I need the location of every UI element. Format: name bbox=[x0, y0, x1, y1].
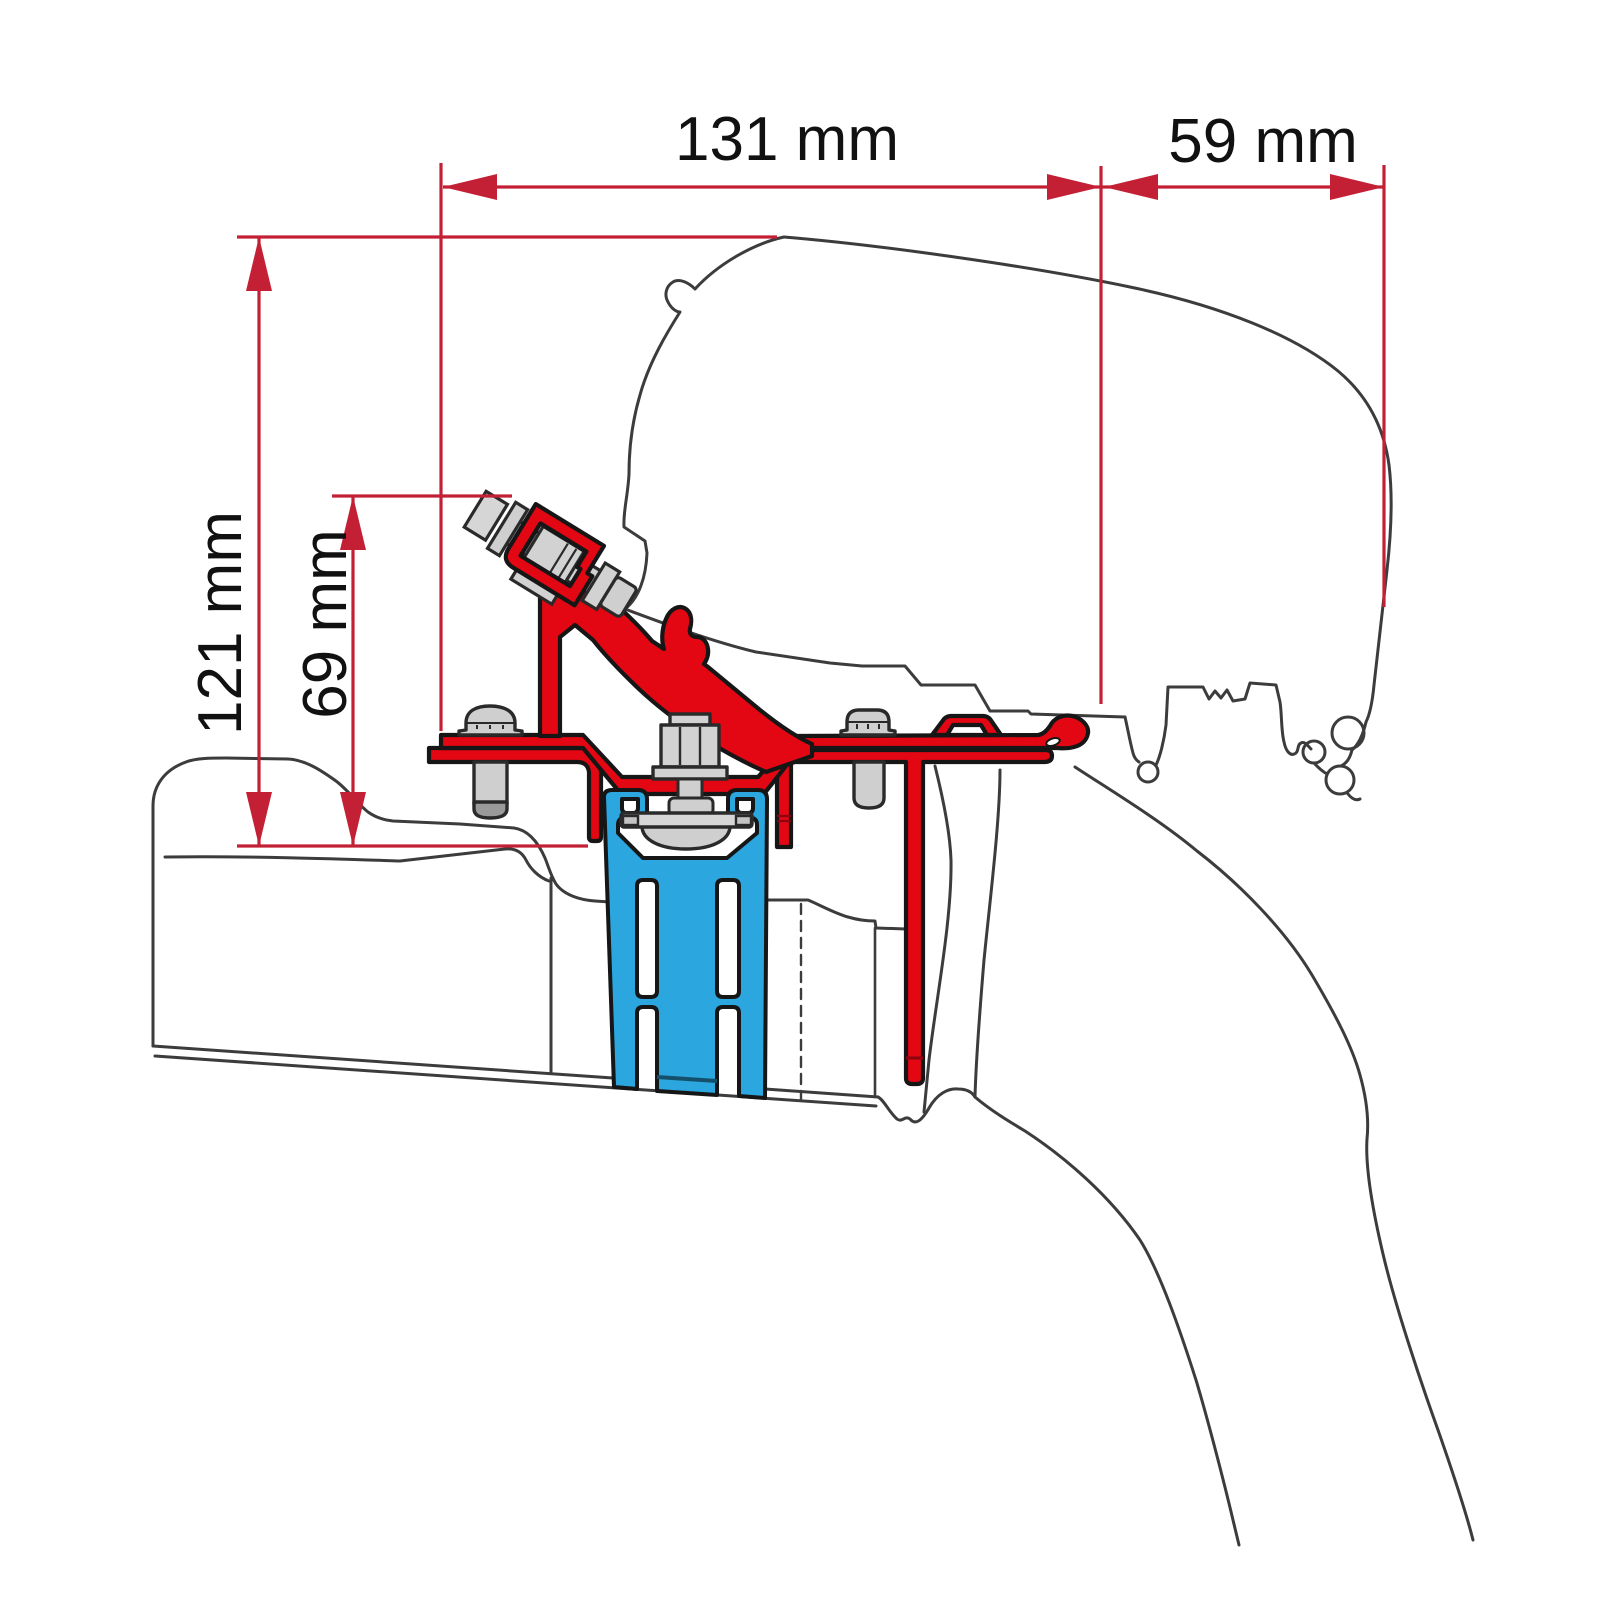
svg-text:69 mm: 69 mm bbox=[291, 529, 360, 718]
svg-text:59 mm: 59 mm bbox=[1168, 107, 1357, 176]
svg-text:131 mm: 131 mm bbox=[675, 105, 899, 174]
svg-text:121 mm: 121 mm bbox=[186, 511, 255, 735]
